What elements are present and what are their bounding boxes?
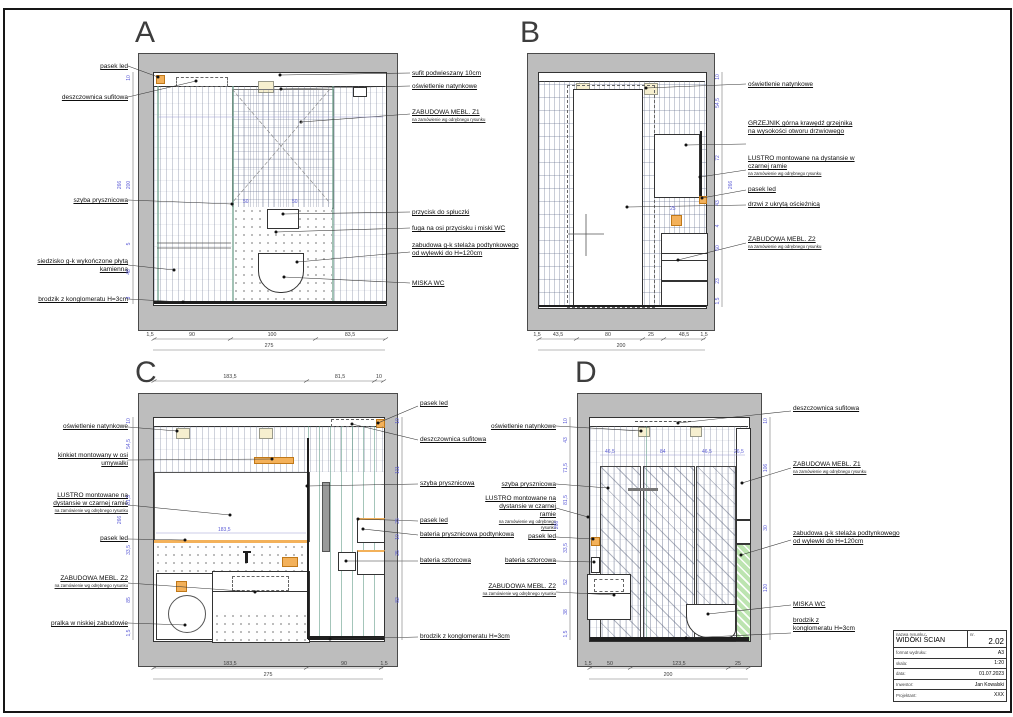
dim-value: 80	[593, 332, 623, 338]
surface-light	[259, 428, 273, 439]
tb-row-label: data:	[896, 671, 906, 676]
annotation: ZABUDOWA MEBL. Z1 na zamówienie wg odręb…	[412, 109, 522, 122]
annotation: pasek led	[420, 400, 500, 408]
annotation: MISKA WC	[412, 280, 522, 288]
dim-value: 48	[126, 261, 132, 283]
dim-value: 25	[723, 661, 753, 667]
elevation-c-letter: C	[135, 356, 158, 390]
annotation: fuga na osi przycisku i miski WC	[412, 225, 527, 233]
dim-value: 50	[715, 237, 721, 259]
shower-tray	[308, 636, 384, 640]
dim-value: 200	[126, 174, 132, 196]
dim-value: 10	[715, 66, 721, 88]
annotation: deszczownica sufitowa	[793, 405, 883, 413]
dim-value: 5	[126, 233, 132, 255]
dim-total: 275	[254, 343, 284, 349]
annotation: kinkiet montowany w osi umywalki	[35, 452, 128, 468]
annotation-subtext: na zamówienie wg odrębnego rysunku	[412, 117, 522, 122]
outlet-marker	[671, 215, 682, 226]
tb-row-value: 01.07.2023	[979, 671, 1004, 677]
dim-value: 1,5	[689, 332, 719, 338]
vanity-cabinet-z2	[587, 574, 631, 620]
dim-value: 183,5	[215, 374, 245, 380]
dim-height: 266	[728, 174, 734, 196]
dim-value: 100	[257, 332, 287, 338]
dim-value: 84	[660, 449, 666, 455]
annotation-text: LUSTRO montowane na dystansie w czarnej …	[53, 492, 128, 507]
dim-value: 83,5	[335, 332, 365, 338]
dim-value: 43	[563, 429, 569, 451]
title-block: nazwa rysunku: WIDOKI ŚCIAN nr. 2.02 for…	[893, 630, 1007, 702]
dim-value: 46,5	[702, 449, 712, 455]
annotation: oświetlenie natynkowe	[412, 83, 522, 91]
outlet-marker	[176, 581, 187, 592]
dim-value: 85	[126, 589, 132, 611]
shower-tray	[590, 637, 749, 641]
dim-value: 82	[395, 589, 401, 611]
annotation: pralka w niskiej zabudowie	[10, 620, 128, 628]
led-strip-marker	[156, 75, 165, 84]
annotation: LUSTRO montowane na dystansie w czarnej …	[748, 155, 860, 176]
annotation: deszczownica sufitowa	[420, 436, 510, 444]
floor-line	[539, 305, 706, 307]
annotation-text: LUSTRO montowane na dystansie w czarnej …	[748, 155, 855, 170]
annotation: oświetlenie natynkowe	[748, 81, 858, 89]
surface-light	[690, 427, 702, 437]
annotation: brodzik z konglomeratu H=3cm	[793, 617, 855, 633]
mirror	[154, 472, 310, 542]
dim-value: 90	[177, 332, 207, 338]
concealed-shower-mixer	[357, 518, 385, 543]
annotation-text: ZABUDOWA MEBL. Z1	[793, 461, 861, 468]
tile-joint	[157, 86, 159, 302]
annotation-text: ZABUDOWA MEBL. Z2	[748, 236, 816, 243]
led-strip-marker	[699, 196, 707, 204]
annotation: drzwi z ukrytą ościeżnicą	[748, 201, 858, 209]
vanity-cabinet-z2	[212, 571, 310, 643]
annotation: pasek led	[748, 186, 858, 194]
elevation-b-letter: B	[520, 16, 541, 50]
drawing-title: WIDOKI ŚCIAN	[896, 637, 965, 644]
dim-value: 10	[126, 67, 132, 89]
dim-value: 183,5	[215, 661, 245, 667]
annotation: ZABUDOWA MEBL. Z2 na zamówienie wg odręb…	[478, 583, 556, 596]
elevation-a-letter: A	[135, 16, 156, 50]
annotation: LUSTRO montowane na dystansie w czarnej …	[484, 495, 556, 530]
dim-total: 200	[653, 672, 683, 678]
cabinet-z2-lower	[661, 281, 708, 306]
dim-value: 1,5	[135, 332, 165, 338]
elevation-c	[153, 417, 385, 642]
dim-value: 33,5	[563, 537, 569, 559]
dim-value: 38	[563, 601, 569, 623]
annotation: LUSTRO montowane na dystansie w czarnej …	[35, 492, 128, 513]
built-in-z1-area	[232, 89, 334, 209]
annotation: brodzik z konglomeratu H=3cm	[420, 633, 530, 641]
dim-value: 23	[715, 270, 721, 292]
dim-value: 25	[670, 206, 676, 212]
dim-value: 3	[126, 287, 132, 309]
wc-bowl	[258, 253, 304, 293]
annotation: sufit podwieszany 10cm	[412, 70, 522, 78]
dim-value: 43	[715, 192, 721, 214]
annotation-subtext: na zamówienie wg odrębnego rysunku	[484, 519, 556, 529]
dim-value: 1,5	[563, 623, 569, 645]
tb-row-value: 1:20	[994, 660, 1004, 666]
drawing-number: 2.02	[970, 637, 1004, 646]
tb-row-value: Jan Kowalski	[975, 682, 1004, 688]
annotation-subtext: na zamówienie wg odrębnego rysunku	[35, 508, 128, 513]
annotation: bateria prysznicowa podtynkowa	[420, 531, 520, 539]
elevation-b	[538, 72, 707, 309]
dim-value: 33,5	[126, 539, 132, 561]
dim-value: 1,5	[715, 290, 721, 312]
dim-value: 81,5	[126, 489, 132, 511]
drawer-split	[662, 253, 707, 254]
dim-value: 90	[329, 661, 359, 667]
drawing-sheet: { "panels": { "A": { "letter": "A", "lef…	[0, 0, 1013, 717]
annotation: pasek led	[60, 535, 128, 543]
basin-outline	[594, 579, 624, 592]
dim-value: 10	[763, 410, 769, 432]
wc-bowl	[686, 604, 736, 638]
outlet-marker	[282, 557, 298, 567]
shower-column	[322, 482, 330, 552]
dim-value: 46,5	[605, 449, 615, 455]
counter-line	[213, 591, 309, 592]
annotation-text: ZABUDOWA MEBL. Z2	[60, 575, 128, 582]
annotation: pasek led	[508, 533, 556, 541]
shower-tray-line	[154, 301, 386, 304]
dim-value: 54,5	[715, 92, 721, 114]
dim-value: 111	[395, 459, 401, 481]
dim-value: 25	[636, 332, 666, 338]
annotation-subtext: na zamówienie wg odrębnego rysunku	[35, 583, 128, 588]
annotation: ZABUDOWA MEBL. Z2 na zamówienie wg odręb…	[748, 236, 858, 249]
dim-total: 200	[606, 343, 636, 349]
annotation: deszczownica sufitowa	[38, 94, 128, 102]
drawer-split	[662, 260, 707, 261]
mosaic-plinth	[213, 612, 309, 641]
annotation-subtext: na zamówienie wg odrębnego rysunku	[748, 171, 860, 176]
annotation-text: ZABUDOWA MEBL. Z1	[412, 109, 480, 116]
tile-joint	[232, 86, 234, 302]
annotation-subtext: na zamówienie wg odrębnego rysunku	[478, 591, 556, 596]
annotation: szyba prysznicowa	[55, 197, 128, 205]
ceiling-recess	[353, 87, 367, 97]
dim-value: 106	[763, 457, 769, 479]
flush-button	[267, 209, 299, 229]
dim-value: 1,5	[126, 622, 132, 644]
dim-value: 30	[763, 517, 769, 539]
annotation-text: LUSTRO montowane na dystansie w czarnej …	[485, 495, 556, 518]
annotation: oświetlenie natynkowe	[45, 423, 128, 431]
washing-machine-drum	[168, 595, 206, 633]
shower-glass-edge	[307, 438, 309, 639]
dim-value: 43,5	[543, 332, 573, 338]
led-strip-marker	[591, 537, 600, 546]
radiator	[654, 134, 700, 198]
stem-mixer	[357, 550, 385, 575]
towel-bar	[628, 488, 658, 491]
dim-value: 4	[715, 215, 721, 237]
dim-height: 266	[554, 514, 560, 536]
surface-light	[176, 428, 190, 439]
dim-height: 266	[117, 174, 123, 196]
annotation: ZABUDOWA MEBL. Z1 na zamówienie wg odręb…	[793, 461, 888, 474]
door-opening	[573, 89, 643, 307]
basin-outline	[232, 576, 289, 591]
tb-row-label: Projektant:	[896, 693, 917, 698]
tb-row-value: A3	[998, 650, 1004, 656]
dim-value: 81,5	[563, 489, 569, 511]
cistern-enclosure	[736, 544, 751, 642]
dim-value: 26,5	[734, 449, 744, 455]
dim-height: 266	[117, 509, 123, 531]
dim-value: 71,5	[563, 457, 569, 479]
dim-value: 10	[126, 410, 132, 432]
annotation-subtext: na zamówienie wg odrębnego rysunku	[793, 469, 888, 474]
dim-value: 10	[364, 374, 394, 380]
tb-row-value: XXX	[994, 692, 1004, 698]
annotation-text: ZABUDOWA MEBL. Z2	[488, 583, 556, 590]
annotation: bateria sztorcowa	[496, 557, 556, 565]
dim-value: 54,5	[126, 433, 132, 455]
elevation-d-letter: D	[575, 356, 598, 390]
annotation: przycisk do spłuczki	[412, 209, 522, 217]
dim-value: 50	[292, 199, 298, 205]
annotation: oświetlenie natynkowe	[480, 423, 556, 431]
dim-value: 123,5	[664, 661, 694, 667]
annotation: MISKA WC	[793, 601, 883, 609]
dim-value: 81,5	[325, 374, 355, 380]
annotation: zabudowa g-k stelaża podtynkowego od wyl…	[412, 242, 524, 258]
elevation-a	[153, 72, 387, 306]
annotation: ZABUDOWA MEBL. Z2 na zamówienie wg odręb…	[35, 575, 128, 588]
counter-line	[588, 593, 630, 594]
shelf-unit-z1	[736, 428, 751, 520]
dim-value: 183,5	[218, 527, 231, 533]
dim-value: 50	[595, 661, 625, 667]
dim-total: 275	[253, 672, 283, 678]
dim-value: 72	[715, 147, 721, 169]
dim-value: 10	[395, 410, 401, 432]
annotation: GRZEJNIK górna krawędź grzejnika na wyso…	[748, 120, 860, 136]
control-box	[338, 552, 356, 571]
dim-value: 120	[763, 577, 769, 599]
faucet	[245, 551, 248, 563]
stem-mixer	[591, 557, 600, 573]
wall-sconce	[254, 457, 294, 464]
shower-glass-panel	[696, 466, 736, 608]
annotation: brodzik z konglomeratu H=3cm	[10, 296, 128, 304]
annotation: pasek led	[60, 63, 128, 71]
annotation-subtext: na zamówienie wg odrębnego rysunku	[748, 244, 858, 249]
cabinet-z2	[661, 233, 708, 281]
dim-value: 52	[563, 571, 569, 593]
annotation: siedzisko g-k wykończone płytą kamienną	[33, 258, 128, 274]
tb-row-label: format wydruku:	[896, 650, 927, 655]
mirror-edge	[700, 131, 702, 201]
dim-value: 1,5	[369, 661, 399, 667]
tb-row-label: skala:	[896, 661, 907, 666]
tile-joint	[332, 86, 334, 302]
ceiling-shower-outline	[635, 421, 691, 422]
annotation: zabudowa g-k stelaża podtynkowego od wyl…	[793, 530, 903, 546]
dim-value: 50	[243, 199, 249, 205]
annotation: szyba prysznicowa	[486, 481, 556, 489]
dim-value: 25	[395, 542, 401, 564]
tb-row-label: Inwestor:	[896, 682, 913, 687]
open-shelf	[736, 520, 751, 544]
